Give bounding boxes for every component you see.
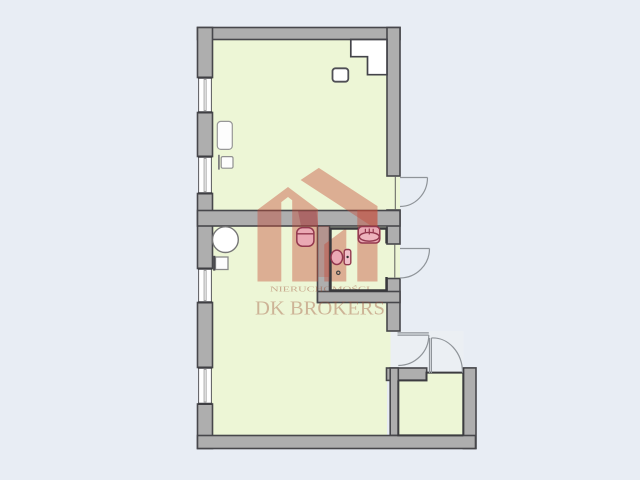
- svg-text:NIERUCHOMOŚCI: NIERUCHOMOŚCI: [270, 284, 371, 294]
- svg-text:DK BROKERS: DK BROKERS: [255, 298, 385, 320]
